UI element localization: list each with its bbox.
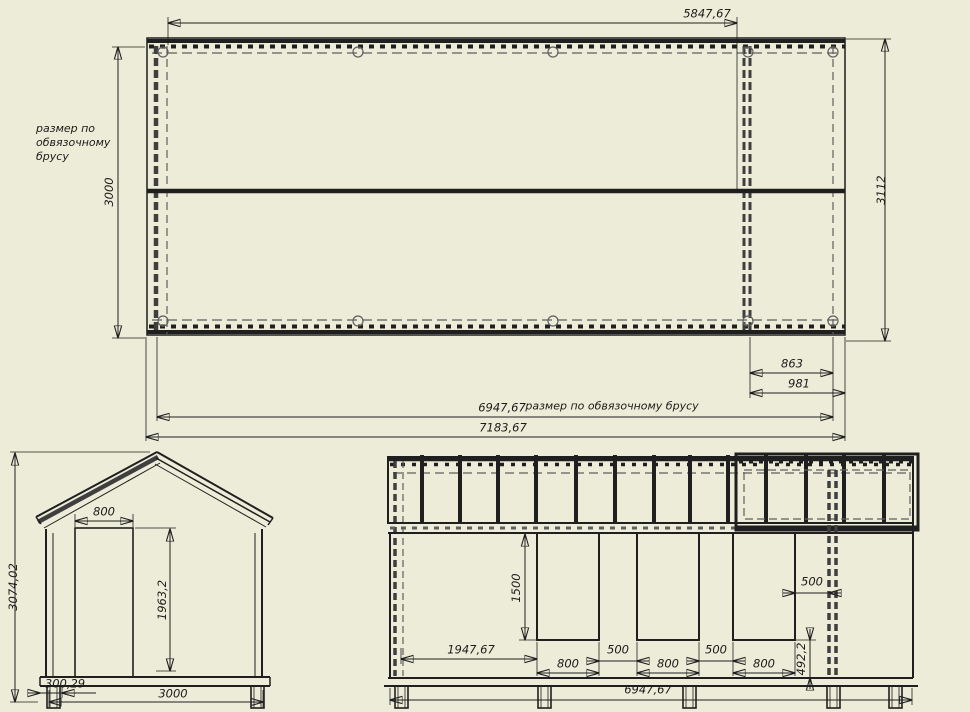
- dim-plan-height-right: 3112: [874, 175, 888, 204]
- dim-plan-overall-width: 7183,67: [479, 421, 527, 435]
- dim-plan-offset-large: 981: [788, 377, 810, 391]
- plan-note-bottom-label: размер по обвязочному брусу: [525, 399, 698, 413]
- dim-plan-top-width: 5847,67: [683, 7, 731, 21]
- dim-side-opening1-width: 800: [557, 657, 579, 671]
- plan-note-left-label: размер по обвязочному брусу: [36, 122, 110, 163]
- dim-gable-base-width: 3000: [158, 687, 187, 701]
- dim-side-corner-gap: 500: [801, 575, 823, 589]
- dim-side-opening-height: 1500: [509, 573, 523, 602]
- technical-drawing-canvas: [0, 0, 970, 712]
- dim-side-opening3-width: 800: [753, 657, 775, 671]
- dim-side-frame-width: 6947,67: [624, 683, 672, 697]
- dim-side-offset-left: 1947,67: [447, 643, 495, 657]
- side-view-linework: [384, 454, 918, 708]
- technical-drawing-stage: размер по обвязочному брусу 5847,67 3000…: [0, 0, 970, 712]
- dim-side-opening2-width: 800: [657, 657, 679, 671]
- plan-view-dimension-lines: [112, 17, 891, 441]
- dim-side-gap2: 500: [705, 643, 727, 657]
- dim-plan-height-left: 3000: [102, 177, 116, 206]
- drawing-page: { "title": "timber frame technical drawi…: [0, 0, 970, 712]
- dim-side-gap1: 500: [607, 643, 629, 657]
- dim-plan-frame-width: 6947,67: [478, 401, 526, 415]
- plan-view-linework: [147, 38, 845, 346]
- dim-gable-overall-height: 3074,02: [6, 563, 20, 611]
- dim-plan-offset-small: 863: [781, 357, 803, 371]
- dim-side-sill-height: 492,2: [794, 643, 808, 676]
- side-view-dimension-lines: [390, 534, 912, 705]
- dim-gable-door-height: 1963,2: [155, 580, 169, 620]
- dim-gable-overhang: 300,29: [45, 677, 85, 691]
- dim-gable-door-width: 800: [93, 505, 115, 519]
